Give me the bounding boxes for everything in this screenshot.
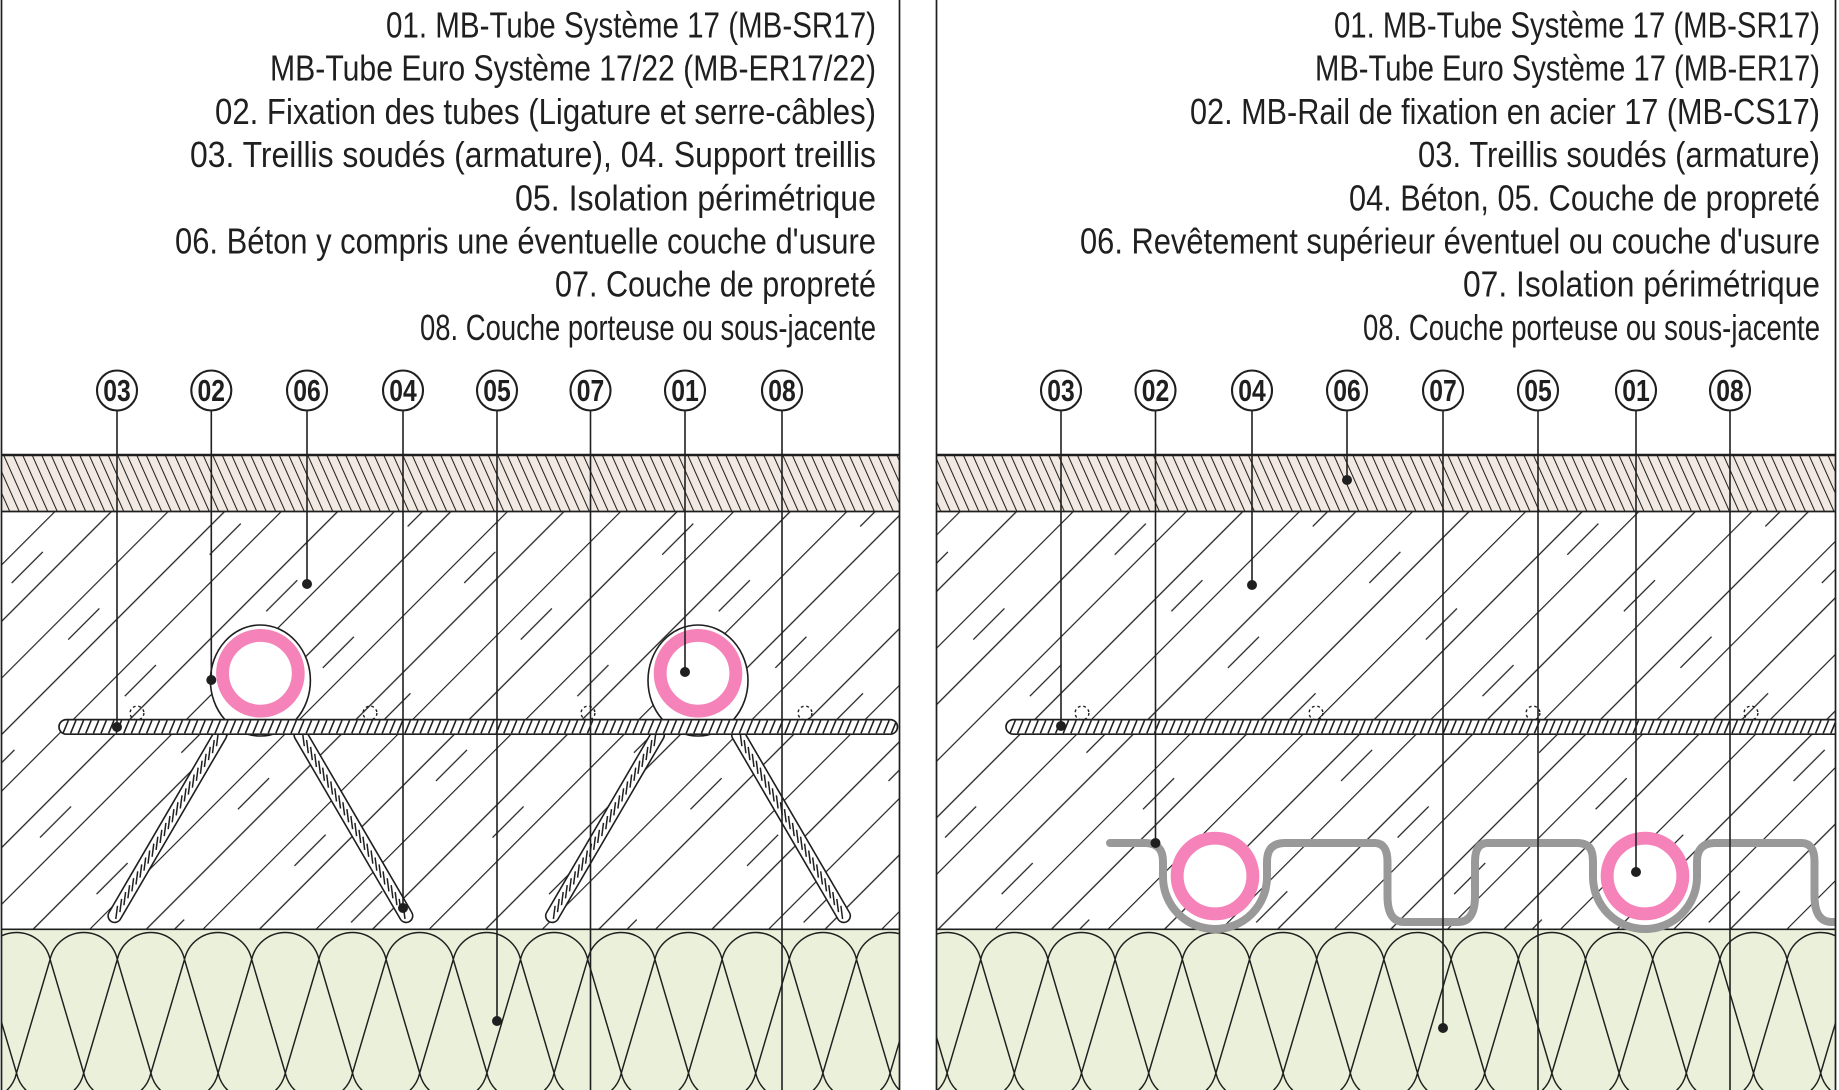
svg-text:07: 07 bbox=[1429, 373, 1457, 408]
svg-text:05: 05 bbox=[483, 373, 511, 408]
svg-text:03: 03 bbox=[103, 373, 131, 408]
svg-text:01. MB-Tube Système 17 (MB-SR1: 01. MB-Tube Système 17 (MB-SR17) bbox=[386, 5, 876, 46]
svg-text:06. Revêtement supérieur évent: 06. Revêtement supérieur éventuel ou cou… bbox=[1080, 221, 1820, 262]
svg-text:01: 01 bbox=[671, 373, 699, 408]
svg-text:05: 05 bbox=[1524, 373, 1552, 408]
svg-text:03. Treillis soudés (armature): 03. Treillis soudés (armature) bbox=[1418, 134, 1820, 175]
svg-text:02: 02 bbox=[198, 373, 226, 408]
svg-text:08. Couche porteuse ou sous-ja: 08. Couche porteuse ou sous-jacente bbox=[1363, 307, 1820, 348]
svg-text:07. Couche de propreté: 07. Couche de propreté bbox=[555, 264, 876, 305]
svg-text:07: 07 bbox=[577, 373, 605, 408]
svg-text:06: 06 bbox=[293, 373, 321, 408]
svg-text:04: 04 bbox=[389, 373, 417, 408]
svg-text:02. MB-Rail de fixation en aci: 02. MB-Rail de fixation en acier 17 (MB-… bbox=[1190, 91, 1820, 132]
svg-text:01. MB-Tube Système 17 (MB-SR1: 01. MB-Tube Système 17 (MB-SR17) bbox=[1334, 5, 1820, 46]
svg-text:04. Béton, 05. Couche de propr: 04. Béton, 05. Couche de propreté bbox=[1349, 177, 1820, 218]
svg-text:MB-Tube Euro Système 17 (MB-ER: MB-Tube Euro Système 17 (MB-ER17) bbox=[1315, 48, 1820, 89]
svg-text:05. Isolation périmétrique: 05. Isolation périmétrique bbox=[515, 177, 876, 218]
svg-text:02. Fixation des tubes (Ligatu: 02. Fixation des tubes (Ligature et serr… bbox=[215, 91, 876, 132]
svg-text:08: 08 bbox=[768, 373, 796, 408]
svg-text:03: 03 bbox=[1047, 373, 1075, 408]
svg-text:02: 02 bbox=[1142, 373, 1170, 408]
svg-text:03. Treillis soudés (armature): 03. Treillis soudés (armature), 04. Supp… bbox=[190, 134, 876, 175]
svg-text:MB-Tube Euro Système 17/22 (MB: MB-Tube Euro Système 17/22 (MB-ER17/22) bbox=[270, 48, 876, 89]
svg-text:06: 06 bbox=[1333, 373, 1361, 408]
svg-text:07. Isolation périmétrique: 07. Isolation périmétrique bbox=[1463, 264, 1820, 305]
svg-text:08: 08 bbox=[1716, 373, 1744, 408]
svg-text:08. Couche porteuse ou sous-ja: 08. Couche porteuse ou sous-jacente bbox=[420, 307, 876, 348]
svg-text:06. Béton y compris une éventu: 06. Béton y compris une éventuelle couch… bbox=[175, 221, 876, 262]
svg-text:04: 04 bbox=[1238, 373, 1266, 408]
svg-text:01: 01 bbox=[1622, 373, 1650, 408]
